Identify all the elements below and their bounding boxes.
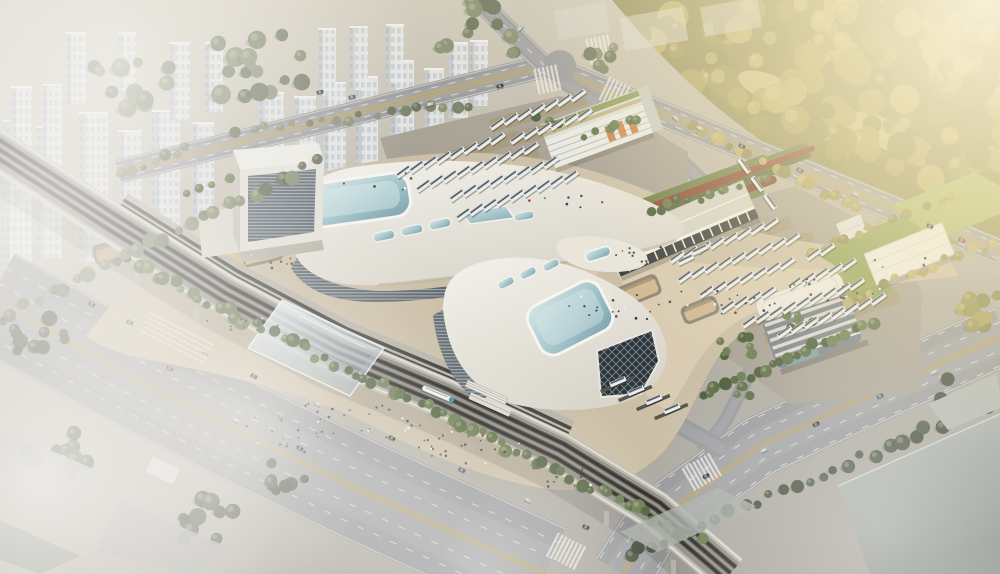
rendering-canvas bbox=[0, 0, 1000, 574]
warm-light-overlay bbox=[0, 0, 1000, 574]
aerial-rendering bbox=[0, 0, 1000, 574]
atmosphere bbox=[0, 0, 1000, 574]
